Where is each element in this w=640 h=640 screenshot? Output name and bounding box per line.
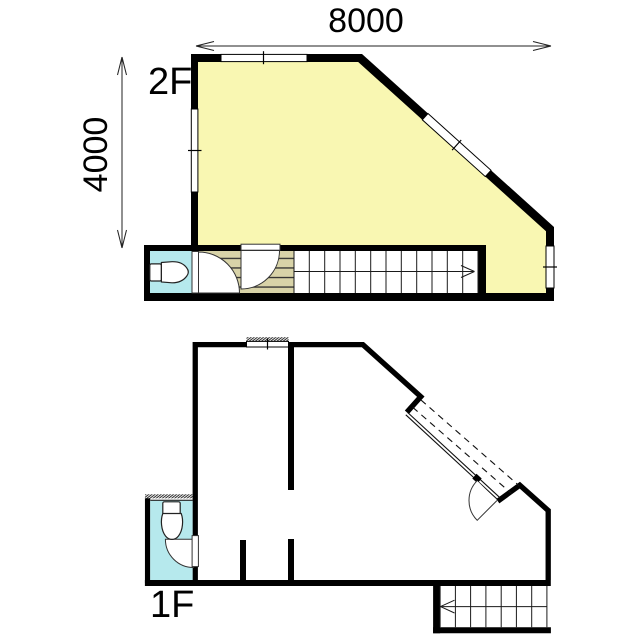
svg-text:2F: 2F <box>148 61 192 103</box>
svg-text:1F: 1F <box>150 584 194 626</box>
svg-text:4000: 4000 <box>77 117 115 193</box>
svg-text:8000: 8000 <box>328 2 404 40</box>
